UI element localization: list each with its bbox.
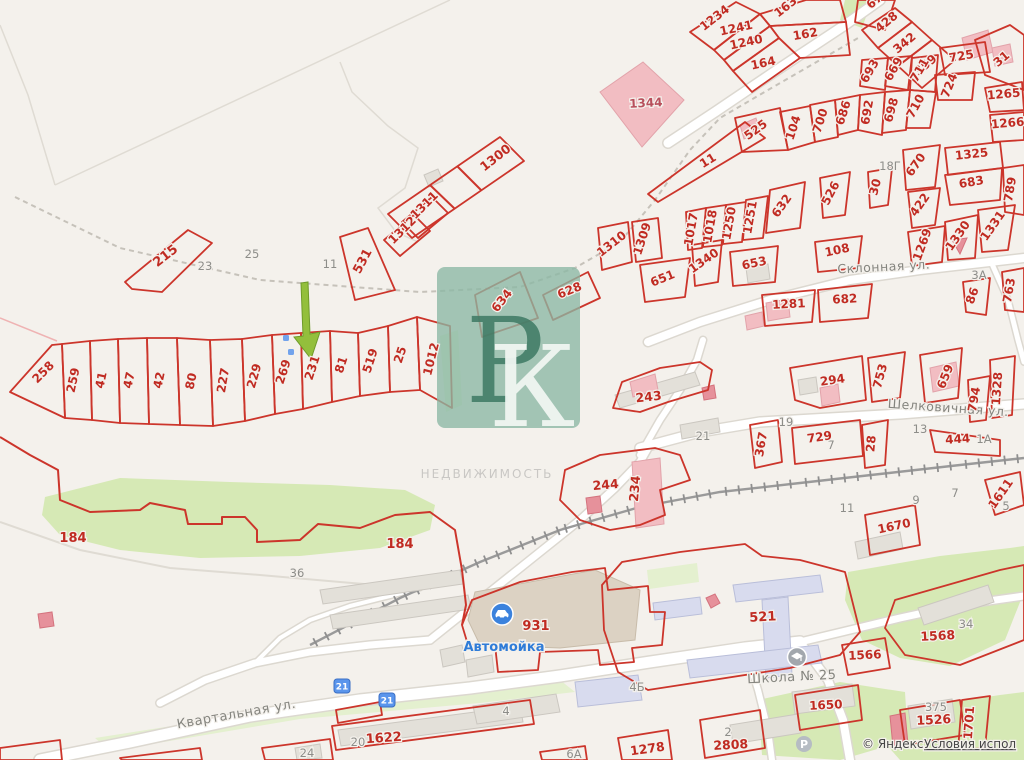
railway-tie — [818, 476, 819, 485]
address-label: 21 — [696, 429, 711, 443]
parcel-label: 28 — [863, 435, 878, 453]
parcel-label: 931 — [522, 619, 549, 634]
watermark-subtext: НЕДВИЖИМОСТЬ — [421, 467, 554, 481]
parcel-label: 444 — [945, 431, 971, 447]
address-label: 3А — [971, 268, 986, 282]
parcel-label: 1328 — [989, 372, 1005, 406]
address-label: 13 — [913, 422, 928, 436]
address-label: 4Б — [629, 680, 644, 694]
parcel-label: 1265 — [986, 86, 1020, 103]
address-label: 23 — [198, 259, 213, 273]
parcel-label: 1566 — [848, 647, 882, 663]
parcel-label: 2808 — [713, 736, 749, 753]
parcel-label: 1344 — [629, 95, 663, 111]
railway-tie — [965, 460, 966, 469]
carwash-label[interactable]: Автомойка — [463, 640, 544, 655]
address-label: 11 — [323, 257, 338, 271]
parcel-label: 184 — [59, 531, 86, 546]
parcel-label: 1266 — [990, 115, 1024, 132]
address-label: 11 — [840, 501, 855, 515]
railway-tie — [805, 478, 806, 487]
map-canvas[interactable]: РКНЕДВИЖИМОСТЬСклонная ул.Шелковичная ул… — [0, 0, 1024, 760]
transit-stop-marker[interactable] — [288, 349, 294, 355]
parcel-label: 244 — [592, 476, 620, 493]
railway-tie — [870, 471, 871, 480]
building-gray — [798, 377, 818, 395]
railway-tie — [1004, 456, 1005, 465]
address-label: 34 — [959, 617, 974, 631]
carwash-icon-wheel — [497, 616, 500, 619]
railway-tie — [764, 482, 765, 491]
parking-icon-letter: P — [800, 738, 808, 751]
railway-tie — [1017, 454, 1018, 463]
railway-tie — [844, 473, 845, 482]
railway-tie — [924, 464, 925, 473]
railway-tie — [751, 484, 752, 493]
railway-tie — [898, 467, 899, 476]
railway-tie — [738, 485, 739, 494]
building-dkpink — [38, 612, 54, 628]
parcel-label: 1281 — [772, 296, 806, 312]
parcel-label: 1650 — [809, 697, 843, 713]
railway-tie — [937, 463, 938, 472]
copyright-text: © Яндекс — [862, 737, 924, 751]
bus-route-number: 21 — [336, 683, 349, 693]
address-label: 36 — [290, 566, 305, 580]
address-label: 25 — [245, 247, 260, 261]
parcel-label: 682 — [832, 291, 858, 306]
parcel-label: 1622 — [365, 730, 402, 747]
parcel-label: 184 — [386, 537, 413, 552]
transit-stop-marker[interactable] — [283, 335, 289, 341]
parcel-label: 243 — [635, 388, 663, 406]
address-label: 24 — [300, 746, 315, 760]
railway-tie — [725, 487, 726, 496]
railway-tie — [857, 472, 858, 481]
building-dkpink — [586, 496, 602, 514]
address-label: 18Г — [879, 159, 901, 173]
address-label: 1А — [976, 432, 991, 446]
address-label: 7 — [951, 486, 958, 500]
address-label: 6А — [566, 747, 581, 760]
bus-route-number: 21 — [381, 697, 394, 707]
address-label: 19 — [779, 415, 794, 429]
address-label: 9 — [912, 493, 919, 507]
railway-tie — [911, 466, 912, 475]
parcel-label: 1701 — [961, 706, 977, 740]
railway-tie — [991, 457, 992, 466]
parcel-label: 234 — [626, 475, 643, 503]
railway-tie — [978, 458, 979, 467]
address-label: 20 — [351, 735, 366, 749]
railway-tie — [790, 480, 791, 489]
railway-tie — [831, 475, 832, 484]
railway-tie — [950, 462, 951, 471]
map-viewport[interactable]: РКНЕДВИЖИМОСТЬСклонная ул.Шелковичная ул… — [0, 0, 1024, 760]
terms-of-use-link[interactable]: Условия испол — [924, 737, 1016, 751]
parcel-label: 1568 — [920, 627, 956, 644]
carwash-icon-wheel — [504, 616, 507, 619]
railway-tie — [777, 481, 778, 490]
parcel-label: 521 — [749, 609, 777, 625]
watermark-letter-k: К — [489, 323, 576, 453]
railway-tie — [885, 469, 886, 478]
parcel-label: 1526 — [916, 711, 952, 728]
address-label: 4 — [502, 704, 509, 718]
